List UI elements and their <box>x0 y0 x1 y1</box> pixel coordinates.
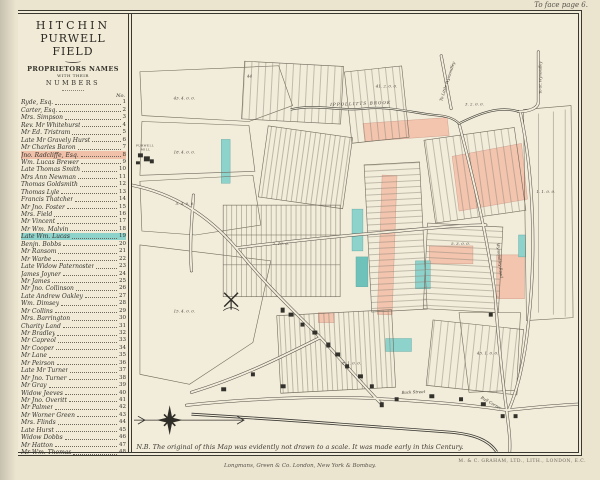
proprietor-name: James Joyner <box>21 271 61 278</box>
printer-imprint: M. & C. GRAHAM, LTD., LITH., LONDON, E.C… <box>458 459 586 464</box>
proprietor-row: Mr James25 <box>21 278 126 285</box>
dotted-leader <box>70 372 117 373</box>
dotted-leader <box>65 439 117 440</box>
proprietor-number: 30 <box>119 315 126 322</box>
proprietor-row: Mrs. Simpson3 <box>21 114 126 121</box>
dotted-leader <box>78 178 117 179</box>
proprietor-row: Mr Charles Baron7 <box>21 144 126 151</box>
field-number: 18. 4. 0. 0. <box>174 149 195 154</box>
subtitle-proprietors-names: PROPRIETORS NAMES <box>18 65 128 73</box>
proprietor-number: 28 <box>119 300 126 307</box>
proprietor-name: Ryde, Esq. <box>21 99 53 106</box>
proprietor-row: Charity Land31 <box>21 322 126 329</box>
proprietor-row: Mr Jno. Collinson26 <box>21 285 126 292</box>
field-number: 8. 1. 0. 0. <box>342 360 361 365</box>
proprietor-number: 26 <box>119 285 126 292</box>
proprietor-row: Mr Bradley32 <box>21 330 126 337</box>
proprietor-name: Mr Warbe <box>21 256 51 263</box>
proprietor-name: Widow Jeeves <box>21 390 63 397</box>
proprietor-number: 33 <box>119 337 126 344</box>
proprietor-name: Francis Thatcher <box>21 196 73 203</box>
label-to-gt-wymondley: To Gt. Wymondley <box>538 62 542 94</box>
proprietor-row: Jno. Radcliffe, Esq.8 <box>21 151 126 158</box>
proprietor-number: 7 <box>123 144 127 151</box>
ornament-divider-small <box>62 88 84 91</box>
proprietor-name: Wm. Dimsey <box>21 300 59 307</box>
proprietor-row: Mr Vincent17 <box>21 218 126 225</box>
proprietor-number: 11 <box>119 174 126 181</box>
proprietor-number: 13 <box>119 189 126 196</box>
proprietor-name: Late Wm. Lucas <box>21 233 70 240</box>
proprietor-name: Late Widow Paternoster <box>21 263 94 270</box>
proprietor-row: Mr Warbe22 <box>21 255 126 262</box>
field-number: 2. 10. 0. <box>272 241 289 246</box>
dotted-leader <box>53 260 117 261</box>
proprietor-number: 2 <box>123 107 127 114</box>
proprietor-name: Late Andrew Oakley <box>21 293 83 300</box>
dotted-leader <box>82 171 117 172</box>
proprietor-number: 17 <box>119 218 126 225</box>
proprietor-name: Thomas Lyle <box>21 189 59 196</box>
proprietor-name: Mrs. Flinds <box>21 419 56 426</box>
proprietor-number: 1 <box>123 99 127 106</box>
proprietor-row: Late Wm. Lucas19 <box>21 233 126 240</box>
proprietor-name: Mrs. Barrington <box>21 315 70 322</box>
proprietor-row: Widow Dobbs46 <box>21 434 126 441</box>
dotted-leader <box>58 253 117 254</box>
proprietor-row: Mrs Ann Newman11 <box>21 173 126 180</box>
proprietor-row: Late Hurst45 <box>21 426 126 433</box>
subtitle-numbers: NUMBERS <box>18 79 128 87</box>
proprietor-name: Benjn. Bobbs <box>21 241 61 248</box>
map-sheet-frame: HITCHIN PURWELL FIELD PROPRIETORS NAMES … <box>18 10 582 456</box>
proprietor-name: Carter, Esq. <box>21 107 57 114</box>
title-purwell-field: PURWELL FIELD <box>18 32 128 58</box>
proprietor-name: Mrs. Simpson <box>21 114 63 121</box>
proprietor-number: 44 <box>119 419 126 426</box>
proprietor-row: Mr Wm. Malvin18 <box>21 225 126 232</box>
proprietor-number: 37 <box>119 367 126 374</box>
proprietor-row: Late Thomas Smith10 <box>21 166 126 173</box>
proprietor-name: Late Mr Turner <box>21 367 68 374</box>
dotted-leader <box>52 282 117 283</box>
proprietor-name: Mr Capreol <box>21 337 56 344</box>
proprietor-row: Mr Palmer42 <box>21 404 126 411</box>
proprietor-number: 38 <box>119 375 126 382</box>
dotted-leader <box>78 149 121 150</box>
paper-edge-shadow <box>0 0 16 480</box>
dotted-leader <box>49 357 117 358</box>
proprietor-name: Late Hurst <box>21 427 54 434</box>
proprietor-row: Ryde, Esq.1 <box>21 99 126 106</box>
proprietor-number: 42 <box>119 404 126 411</box>
dotted-leader <box>63 327 117 328</box>
proprietor-number: 4 <box>123 122 127 129</box>
proprietor-row: Mrs. Flinds44 <box>21 419 126 426</box>
proprietor-row: Mr Capreol33 <box>21 337 126 344</box>
dotted-leader <box>63 275 117 276</box>
dotted-leader <box>80 186 117 187</box>
proprietor-row: Late Widow Paternoster23 <box>21 263 126 270</box>
proprietor-number: 21 <box>119 248 126 255</box>
proprietor-name: Charity Land <box>21 323 61 330</box>
proprietor-row: Wm. Dimsey28 <box>21 300 126 307</box>
proprietor-name: Mr Ed. Tristram <box>21 129 70 136</box>
proprietor-row: Mr Ransom21 <box>21 248 126 255</box>
proprietor-number: 5 <box>123 129 127 136</box>
proprietor-row: Rev. Mr Whitehurst4 <box>21 121 126 128</box>
proprietor-number: 31 <box>119 323 126 330</box>
dotted-leader <box>70 230 117 231</box>
dotted-leader <box>61 193 117 194</box>
proprietor-row: Mr Worner Green43 <box>21 411 126 418</box>
proprietor-row: Mr Collins29 <box>21 307 126 314</box>
proprietor-row: James Joyner24 <box>21 270 126 277</box>
dotted-leader <box>55 312 117 313</box>
proprietor-number: 34 <box>119 345 126 352</box>
field-number: 41. 2. 0. 0. <box>375 84 397 89</box>
proprietor-number: 16 <box>119 211 126 218</box>
dotted-leader <box>72 134 120 135</box>
proprietor-name: Mr Gray <box>21 382 47 389</box>
proprietor-row: Thomas Goldsmith12 <box>21 181 126 188</box>
proprietor-number: 9 <box>123 159 127 166</box>
dotted-leader <box>58 342 117 343</box>
dotted-leader <box>65 119 120 120</box>
dotted-leader <box>49 387 117 388</box>
proprietor-name: Wm. Lucas Brewer <box>21 159 79 166</box>
proprietor-row: Late Mr Gravely Hurst6 <box>21 136 126 143</box>
proprietor-number: 27 <box>119 293 126 300</box>
field-number: 5. 3. 0. 0. <box>451 241 470 246</box>
proprietor-row: Wm. Lucas Brewer9 <box>21 159 126 166</box>
proprietor-name: Mr Wm. Malvin <box>21 226 68 233</box>
proprietor-name: Mr Worner Green <box>21 412 75 419</box>
map-area: PURWELL MILL IPPOLLITTS BROOK To Little … <box>132 14 578 452</box>
dotted-leader <box>96 268 117 269</box>
proprietor-name: Jno. Radcliffe, Esq. <box>21 152 79 159</box>
map-canvas: PURWELL MILL IPPOLLITTS BROOK To Little … <box>132 14 578 452</box>
dotted-leader <box>63 245 117 246</box>
proprietor-name: Mr Jno. Overitt <box>21 397 67 404</box>
field-number: 5. 4. 0. 0. <box>176 201 195 206</box>
proprietor-number: 19 <box>119 233 126 240</box>
dotted-leader <box>81 156 121 157</box>
proprietor-name: Mr Ransom <box>21 248 56 255</box>
dotted-leader <box>72 238 117 239</box>
label-purwell-mill-2: MILL <box>141 147 151 151</box>
proprietor-name: Mrs Ann Newman <box>21 174 76 181</box>
proprietor-number: 40 <box>119 390 126 397</box>
proprietor-row: Mr Jno. Overitt41 <box>21 397 126 404</box>
proprietor-row: Thomas Lyle13 <box>21 188 126 195</box>
dotted-leader <box>72 320 117 321</box>
field-number: 3. 2. 0. 0. <box>465 102 484 107</box>
proprietor-number: 8 <box>123 152 127 159</box>
proprietor-number: 43 <box>119 412 126 419</box>
proprietor-row: Francis Thatcher14 <box>21 196 126 203</box>
proprietor-number: 23 <box>119 263 126 270</box>
proprietor-number: 45 <box>119 427 126 434</box>
proprietor-name: Mr Peirson <box>21 360 55 367</box>
proprietor-number: 22 <box>119 256 126 263</box>
proprietor-row: Carter, Esq.2 <box>21 106 126 113</box>
proprietors-legend: HITCHIN PURWELL FIELD PROPRIETORS NAMES … <box>18 14 132 452</box>
proprietor-row: Mrs. Barrington30 <box>21 315 126 322</box>
field-number: 44 <box>246 74 253 79</box>
dotted-leader <box>82 126 120 127</box>
proprietor-name: Thomas Goldsmith <box>21 181 78 188</box>
proprietor-row: Mr Jno. Foster15 <box>21 203 126 210</box>
field-number: 43. 1. 0. 0. <box>476 350 498 355</box>
dotted-leader <box>75 201 117 202</box>
proprietor-name: Mr Jno. Foster <box>21 204 65 211</box>
dotted-leader <box>55 104 120 105</box>
ornament-divider <box>65 59 81 63</box>
proprietor-row: Mr Peirson36 <box>21 359 126 366</box>
map-note: N.B. The original of this Map was eviden… <box>18 443 582 451</box>
dotted-leader <box>73 454 117 455</box>
proprietor-list: Ryde, Esq.1Carter, Esq.2Mrs. Simpson3Rev… <box>18 99 128 456</box>
proprietor-row: Late Andrew Oakley27 <box>21 292 126 299</box>
dotted-leader <box>76 290 117 291</box>
dotted-leader <box>77 416 117 417</box>
proprietor-row: Mr Cooper34 <box>21 344 126 351</box>
proprietor-number: 20 <box>119 241 126 248</box>
proprietor-number: 35 <box>119 352 126 359</box>
proprietor-name: Mrs. Field <box>21 211 52 218</box>
dotted-leader <box>57 223 117 224</box>
proprietor-number: 15 <box>119 204 126 211</box>
proprietor-number: 14 <box>119 196 126 203</box>
dotted-leader <box>69 379 117 380</box>
proprietor-number: 3 <box>123 114 127 121</box>
proprietor-number: 36 <box>119 360 126 367</box>
dotted-leader <box>56 349 117 350</box>
proprietor-name: Mr Lane <box>21 352 47 359</box>
dotted-leader <box>59 111 120 112</box>
label-back-street: Back Street <box>400 389 425 395</box>
dotted-leader <box>92 141 120 142</box>
proprietor-name: Late Mr Gravely Hurst <box>21 137 90 144</box>
proprietor-row: Mr Lane35 <box>21 352 126 359</box>
dotted-leader <box>55 409 117 410</box>
proprietor-name: Mr Charles Baron <box>21 144 76 151</box>
proprietor-number: 32 <box>119 330 126 337</box>
dotted-leader <box>54 216 117 217</box>
proprietor-number: 24 <box>119 271 126 278</box>
dotted-leader <box>58 424 117 425</box>
dotted-leader <box>67 208 117 209</box>
proprietor-row: Mr Jno. Turner38 <box>21 374 126 381</box>
proprietor-number: 29 <box>119 308 126 315</box>
proprietor-row: Mr Gray39 <box>21 382 126 389</box>
proprietor-number: 12 <box>119 181 126 188</box>
dotted-leader <box>57 364 117 365</box>
field-number: 15. 4. 0. 0. <box>174 309 195 314</box>
proprietor-number: 10 <box>119 166 126 173</box>
proprietor-name: Mr Collins <box>21 308 53 315</box>
dotted-leader <box>61 305 117 306</box>
proprietor-number: 6 <box>123 137 127 144</box>
proprietor-name: Mr James <box>21 278 50 285</box>
proprietor-row: Mrs. Field16 <box>21 211 126 218</box>
proprietor-name: Mr Palmer <box>21 404 53 411</box>
dotted-leader <box>69 401 117 402</box>
subtitle-with-their: WITH THEIR <box>18 73 128 78</box>
dotted-leader <box>81 163 121 164</box>
proprietor-number: 39 <box>119 382 126 389</box>
proprietor-name: Mr Bradley <box>21 330 55 337</box>
field-number: 1. 1. 0. 0. <box>536 189 555 194</box>
proprietor-name: Mr Jno. Turner <box>21 375 67 382</box>
proprietor-name: Rev. Mr Whitehurst <box>21 122 80 129</box>
proprietor-number: 41 <box>119 397 126 404</box>
dotted-leader <box>85 297 117 298</box>
proprietor-name: Mr Vincent <box>21 218 55 225</box>
proprietor-name: Mr Jno. Collinson <box>21 285 74 292</box>
title-hitchin: HITCHIN <box>18 19 128 32</box>
proprietor-number: 46 <box>119 434 126 441</box>
dotted-leader <box>56 431 117 432</box>
proprietor-number: 18 <box>119 226 126 233</box>
proprietor-name: Widow Dobbs <box>21 434 63 441</box>
dotted-leader <box>65 394 117 395</box>
page-annotation: To face page 6. <box>534 1 588 9</box>
proprietor-name: Mr Cooper <box>21 345 54 352</box>
proprietor-row: Benjn. Bobbs20 <box>21 240 126 247</box>
proprietor-row: Widow Jeeves40 <box>21 389 126 396</box>
dotted-leader <box>57 335 117 336</box>
proprietor-name: Late Thomas Smith <box>21 166 80 173</box>
proprietor-number: 25 <box>119 278 126 285</box>
proprietor-row: Late Mr Turner37 <box>21 367 126 374</box>
proprietor-row: Mr Ed. Tristram5 <box>21 129 126 136</box>
field-number: 43. 4. 0. 0. <box>173 96 195 101</box>
